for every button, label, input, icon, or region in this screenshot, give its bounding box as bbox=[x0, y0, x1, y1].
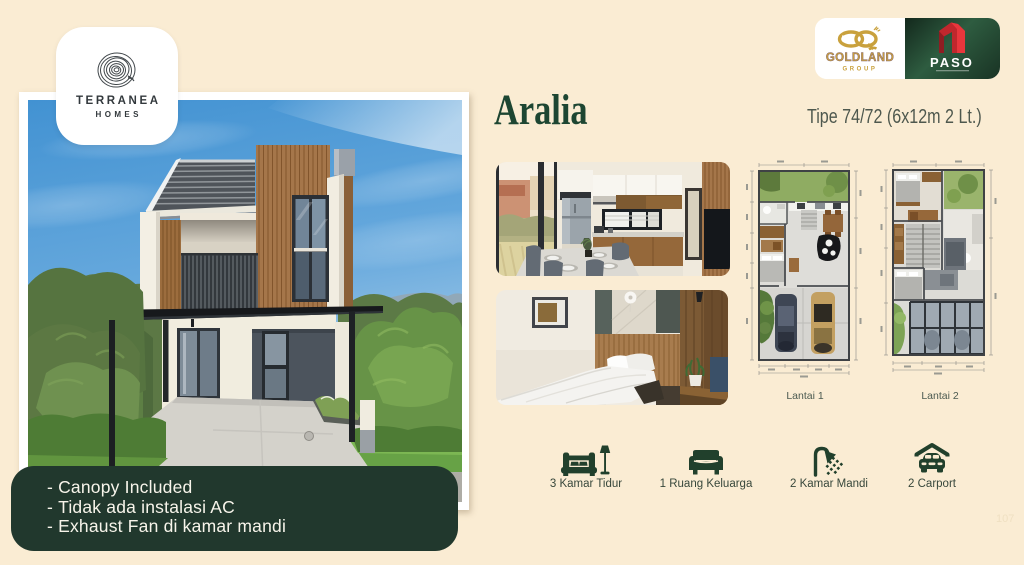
svg-text:GROUP: GROUP bbox=[842, 67, 877, 73]
svg-text:PASO: PASO bbox=[930, 55, 974, 70]
svg-text:GOLDLAND: GOLDLAND bbox=[826, 52, 894, 64]
